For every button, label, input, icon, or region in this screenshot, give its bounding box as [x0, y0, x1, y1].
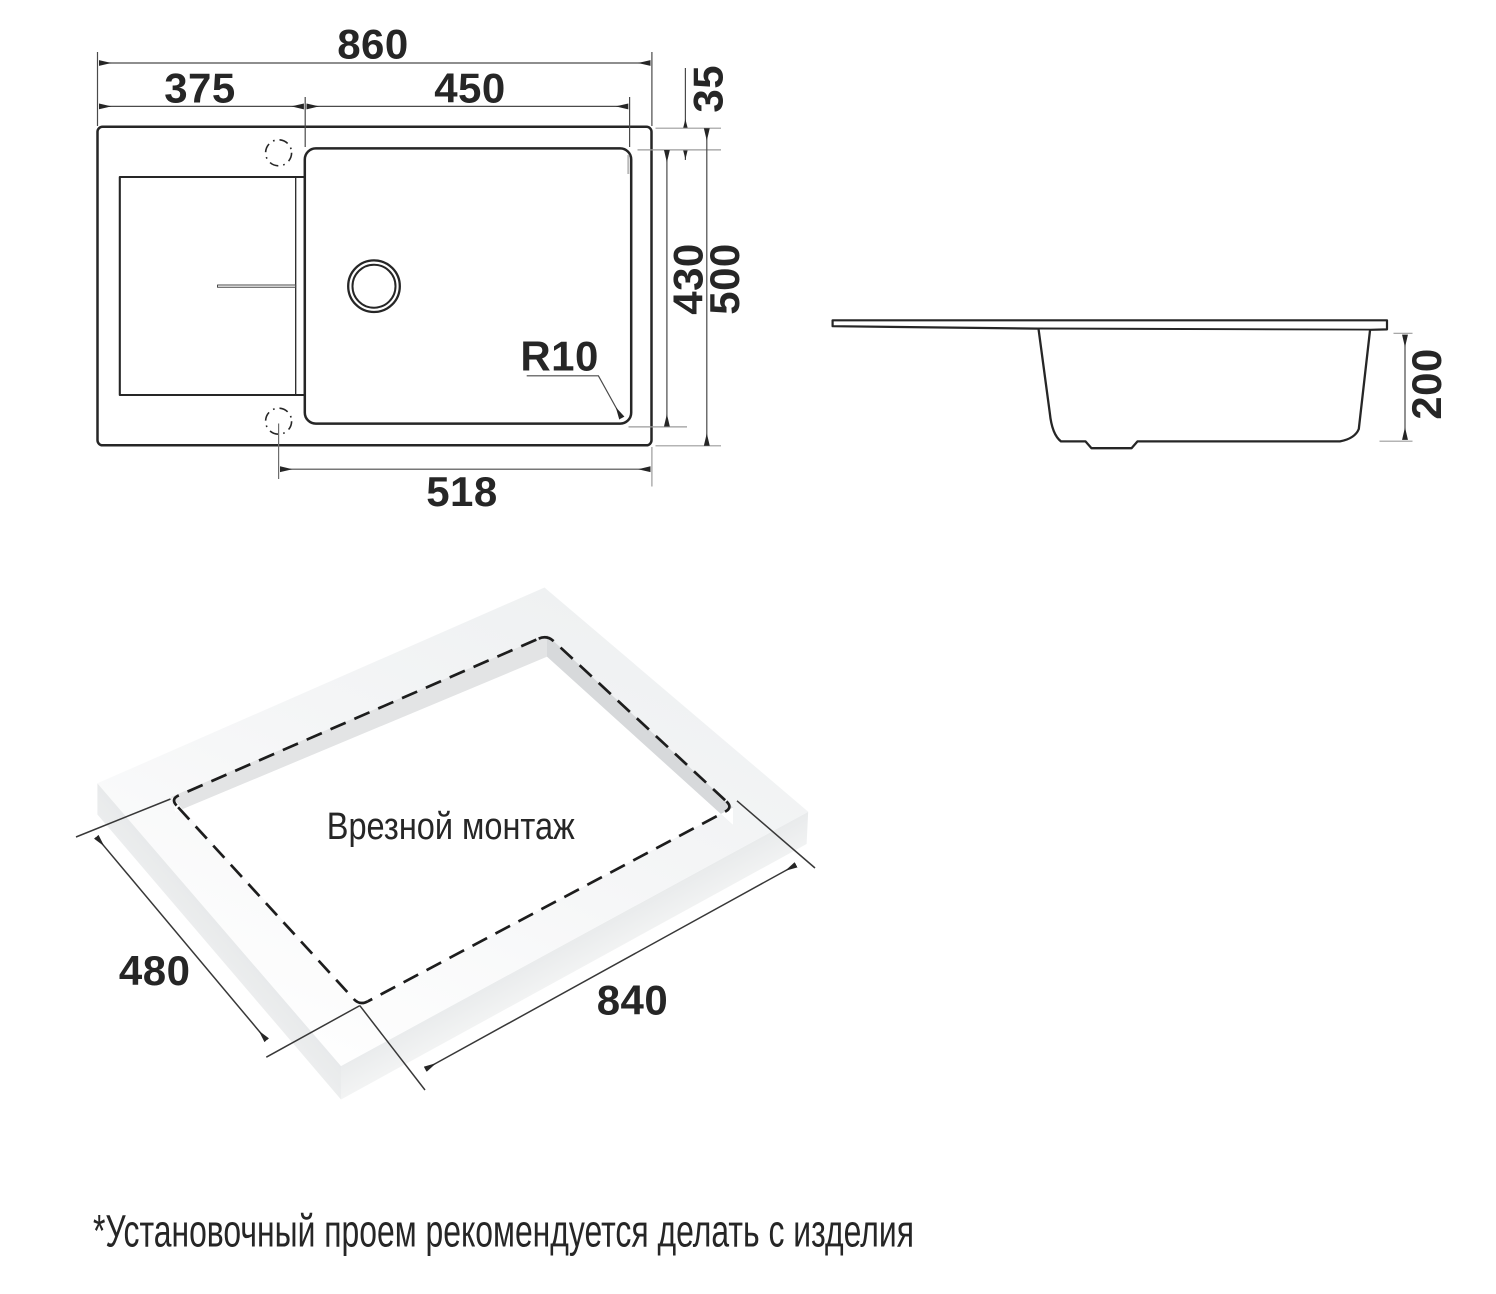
svg-text:200: 200	[1403, 348, 1450, 420]
svg-text:35: 35	[684, 65, 731, 113]
svg-text:480: 480	[119, 947, 191, 994]
svg-text:Врезной монтаж: Врезной монтаж	[327, 806, 575, 848]
svg-text:*Установочный проем рекомендуе: *Установочный проем рекомендуется делать…	[93, 1206, 914, 1257]
svg-text:375: 375	[164, 65, 236, 112]
svg-text:500: 500	[701, 243, 748, 315]
svg-text:450: 450	[434, 65, 506, 112]
svg-text:860: 860	[337, 21, 409, 68]
svg-text:R10: R10	[520, 333, 599, 380]
svg-text:840: 840	[597, 977, 669, 1024]
svg-text:518: 518	[426, 468, 498, 515]
